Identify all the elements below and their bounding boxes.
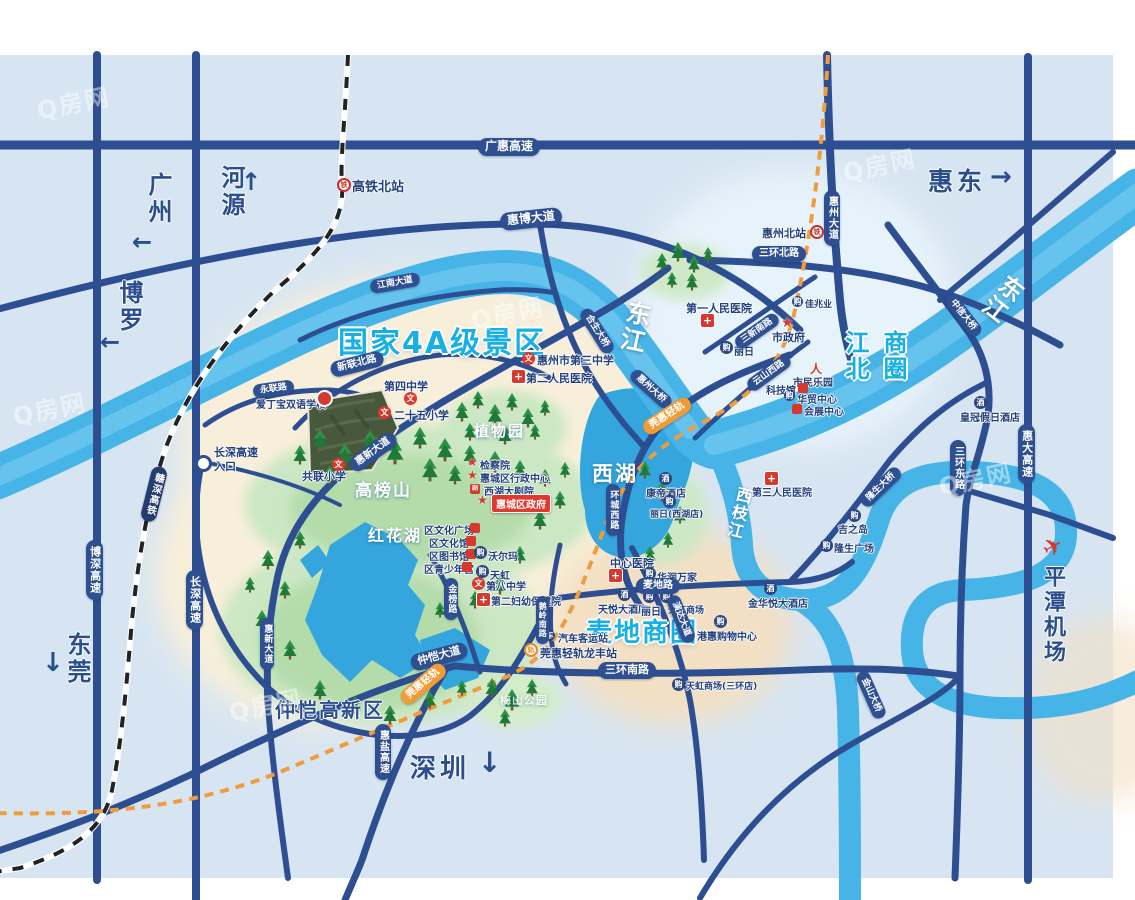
station-longfeng: 莞惠轻轨龙丰站 — [540, 645, 617, 661]
poi-jizhidao: 吉之岛 — [838, 521, 868, 536]
arrow-up-icon: ↑ — [241, 168, 261, 196]
station-gaotie-north: 高铁北站 — [352, 176, 404, 195]
person-icon: 人 — [810, 360, 822, 377]
road-label-sanhuan-south: 三环南路 — [598, 662, 656, 679]
hill-label-gaobangshan: 高榜山 — [355, 476, 412, 501]
star-icon: ★ — [781, 315, 794, 331]
city-label-dongguan: 东莞 — [60, 632, 95, 686]
highway-entrance-label: 长深高速 入口 — [214, 446, 258, 474]
light-rail-station-icon: 轨 — [524, 643, 538, 657]
city-label-guangzhou: 广州 — [141, 172, 176, 226]
mall-icon: 购 — [784, 390, 795, 401]
star-icon: ★ — [477, 493, 488, 507]
arrow-down-icon: ↓ — [42, 648, 64, 678]
road-label-huida-expwy: 惠大高速 — [1018, 424, 1035, 484]
railway-station-icon: 铁 — [337, 178, 351, 192]
arrow-left-icon: ← — [132, 228, 152, 256]
road-label-huiyan-expwy: 惠盐高速 — [375, 724, 391, 780]
lake-label-honghuahu: 红花湖 — [368, 522, 422, 546]
arrow-down-icon: ↓ — [478, 746, 501, 779]
hotel-icon: 酒 — [974, 396, 987, 409]
mall-icon: 购 — [820, 539, 833, 552]
poi-city-gov: 市政府 — [772, 329, 805, 345]
mall-icon: 购 — [714, 615, 727, 628]
poi-tianhong-sanhuan: 天虹商场(三环店) — [686, 679, 757, 692]
culture-icon — [466, 536, 476, 546]
poi-no3-hospital: 第三人民医院 — [752, 484, 812, 499]
star-icon: ★ — [467, 468, 478, 482]
poi-jinhuayue-hotel: 金华悦大酒店 — [748, 595, 808, 610]
mall-icon: 购 — [848, 509, 861, 522]
poi-no3-middle: 惠州市第三中学 — [537, 352, 614, 368]
city-label-huidong: 惠东 — [928, 162, 986, 198]
park-label-botanical-garden: 植物园 — [474, 420, 525, 441]
road-label-changshen-expwy: 长深高速 — [186, 570, 203, 630]
poi-no4-middle: 第四中学 — [384, 378, 428, 394]
mall-icon: 购 — [720, 341, 733, 354]
entrance-line1: 长深高速 — [214, 446, 258, 460]
hospital-icon: + — [700, 313, 715, 328]
poi-liri-xihu: 丽日(西湖店) — [650, 507, 703, 520]
culture-icon — [470, 523, 480, 533]
station-bus: 汽车客运站 — [558, 630, 608, 645]
road-label-jinbang-rd: 金榜路 — [444, 578, 458, 620]
road-label-sanhuan-north: 三环北路 — [752, 246, 806, 262]
science-museum-icon — [798, 383, 808, 393]
star-icon: ★ — [467, 455, 478, 469]
region-label-jiangbei: 江北 商圈 — [838, 330, 911, 382]
exhibition-icon — [792, 404, 802, 414]
city-label-boluo: 博罗 — [112, 280, 147, 334]
school-icon: 文 — [472, 577, 485, 590]
road-label-huizhou-ave: 惠州大道 — [824, 190, 840, 246]
jiangbei-col1: 江北 — [838, 330, 873, 382]
road-label-maidi-rd: 麦地路 — [636, 578, 680, 594]
school-icon: 文 — [404, 392, 417, 405]
mall-icon: 购 — [474, 546, 487, 559]
park-label-meishan: 梅山公园 — [500, 692, 548, 708]
mall-icon: 购 — [792, 296, 803, 307]
hotel-icon: 酒 — [659, 472, 672, 485]
school-icon: 文 — [522, 352, 535, 365]
highway-entrance-icon — [195, 455, 212, 472]
poi-district-gov-highlight: 惠城区政府 — [491, 494, 551, 513]
hotel-icon: 酒 — [618, 588, 631, 601]
project-marker-icon — [316, 390, 333, 407]
poi-exhibition-center: 会展中心 — [804, 403, 844, 418]
hotel-icon: 酒 — [764, 582, 777, 595]
entrance-line2: 入口 — [214, 460, 258, 474]
huizhou-location-map: 广州 ← 河源 ↑ 博罗 ← 东莞 ↓ 惠东 → 深圳 ↓ ✈ 平潭机场 国家4… — [0, 0, 1135, 900]
mall-icon: 购 — [672, 678, 685, 691]
school-icon: 文 — [332, 458, 345, 471]
poi-no2-hospital: 第二人民医院 — [526, 370, 592, 386]
road-label-huixin-ave-south: 惠新大道 — [260, 618, 274, 670]
poi-tianhong: 天虹 — [490, 567, 510, 582]
hospital-icon: + — [511, 369, 526, 384]
poi-walmart: 沃尔玛 — [488, 548, 518, 563]
poi-jiazhaoye: 佳兆业 — [805, 297, 832, 310]
school-icon: 文 — [378, 406, 391, 419]
road-label-boshen-expwy: 博深高速 — [86, 540, 103, 600]
poi-longsheng-plaza: 隆生广场 — [834, 540, 874, 555]
road-label-guanghui-expwy: 广惠高速 — [478, 138, 540, 156]
airport-label-pingtan: 平潭机场 — [1036, 565, 1068, 665]
mall-icon: 购 — [663, 495, 676, 508]
road-label-sanhuan-east: 三环东路 — [950, 440, 966, 496]
station-huizhou-north: 惠州北站 — [762, 225, 806, 241]
poi-no1-hospital: 第一人民医院 — [686, 300, 752, 316]
railway-station-icon: 铁 — [810, 225, 824, 239]
youth-palace-icon — [462, 562, 472, 572]
hospital-icon: + — [608, 568, 623, 583]
road-label-eling-south: 鹅岭南路 — [536, 596, 549, 644]
poi-liri-maidi: 丽日 — [641, 603, 661, 618]
poi-crowne-plaza: 皇冠假日酒店 — [960, 409, 1020, 424]
mall-icon: 购 — [476, 565, 489, 578]
arrow-left-icon: ← — [100, 328, 120, 356]
jiangbei-col2: 商圈 — [876, 330, 911, 382]
road-label-huancheng-west: 环城西路 — [606, 484, 620, 536]
arrow-right-icon: → — [990, 162, 1012, 192]
region-label-zhongkai: 仲恺高新区 — [275, 694, 385, 723]
city-label-shenzhen: 深圳 — [410, 748, 470, 785]
poi-fuyou-hospital: 第二妇幼保健院 — [491, 593, 561, 608]
poi-no25-primary: 二十五小学 — [394, 407, 449, 423]
hospital-icon: + — [476, 592, 491, 607]
poi-ganghui: 港惠购物中心 — [697, 628, 757, 643]
hospital-icon: + — [764, 471, 779, 486]
